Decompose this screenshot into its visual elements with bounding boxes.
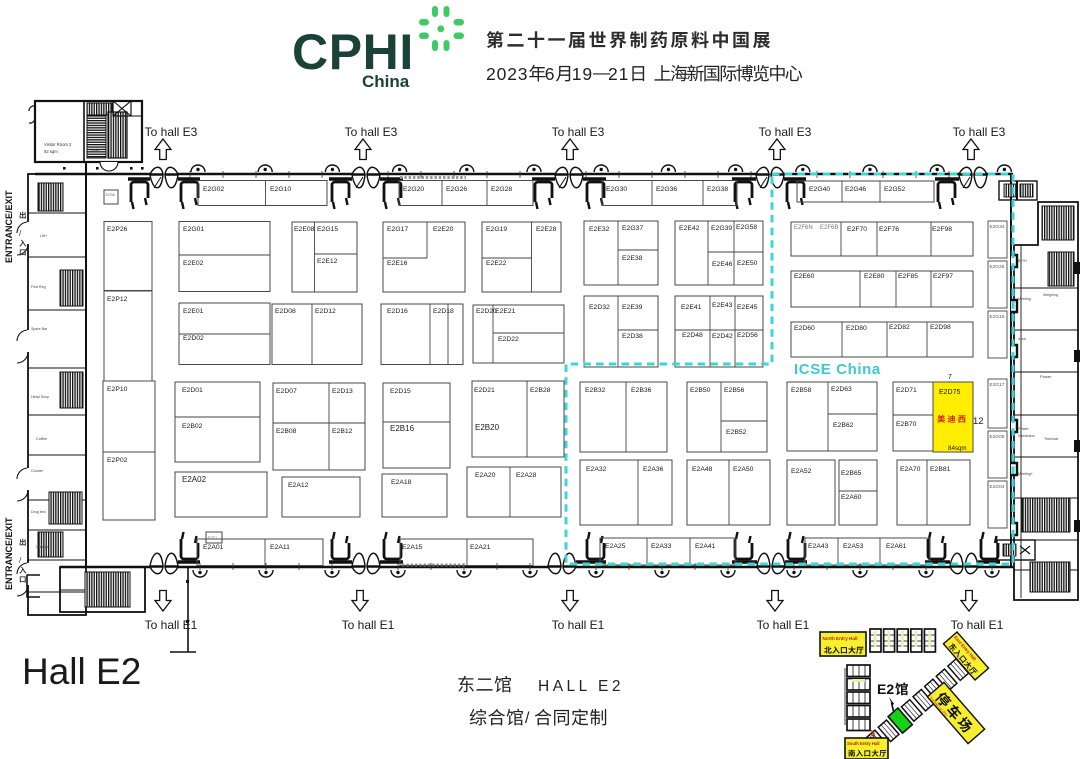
svg-text:E2B70: E2B70 bbox=[896, 421, 917, 428]
svg-text:E2E28: E2E28 bbox=[536, 226, 557, 233]
svg-text:2: 2 bbox=[507, 64, 517, 84]
svg-text:E2A20: E2A20 bbox=[475, 472, 496, 479]
svg-text:E2G10: E2G10 bbox=[270, 186, 291, 193]
svg-text:E2B08: E2B08 bbox=[276, 428, 297, 435]
svg-text:E2A32: E2A32 bbox=[586, 466, 607, 473]
svg-text:E2D02: E2D02 bbox=[183, 335, 204, 342]
svg-text:E2G52: E2G52 bbox=[884, 186, 905, 193]
svg-text:To hall E1: To hall E1 bbox=[145, 618, 198, 632]
svg-text:E2A33: E2A33 bbox=[651, 543, 672, 550]
svg-text:Technical: Technical bbox=[1044, 437, 1058, 441]
svg-text:E2G01: E2G01 bbox=[183, 226, 204, 233]
svg-text:Area: Area bbox=[1018, 337, 1026, 341]
svg-text:E2D13: E2D13 bbox=[332, 388, 353, 395]
svg-text:E2E02: E2E02 bbox=[183, 260, 204, 267]
svg-text:E2G34: E2G34 bbox=[990, 224, 1005, 230]
svg-text:E2B50: E2B50 bbox=[690, 387, 711, 394]
svg-text:E2G30: E2G30 bbox=[606, 186, 627, 193]
svg-text:E2G04: E2G04 bbox=[990, 484, 1005, 490]
svg-text:E2E08: E2E08 bbox=[294, 226, 315, 233]
svg-text:E2F85: E2F85 bbox=[898, 273, 918, 280]
svg-text:E2B81: E2B81 bbox=[930, 466, 951, 473]
svg-text:Weighing: Weighing bbox=[1043, 293, 1058, 297]
svg-text:Toilet: Toilet bbox=[90, 149, 100, 153]
svg-text:To hall E3: To hall E3 bbox=[345, 125, 398, 139]
svg-text:E2G40: E2G40 bbox=[809, 186, 830, 193]
svg-text:E2D75: E2D75 bbox=[939, 389, 961, 396]
svg-text:E2A60: E2A60 bbox=[841, 494, 862, 501]
svg-text:E2F6N: E2F6N bbox=[794, 225, 813, 231]
svg-text:E2D56: E2D56 bbox=[737, 332, 758, 339]
svg-text:Power: Power bbox=[1018, 427, 1029, 431]
svg-text:Head Shop: Head Shop bbox=[31, 395, 49, 399]
svg-text:E2D48: E2D48 bbox=[682, 332, 703, 339]
svg-text:84sqm: 84sqm bbox=[948, 445, 967, 452]
svg-text:E2B36: E2B36 bbox=[631, 387, 652, 394]
svg-text:To hall E3: To hall E3 bbox=[759, 125, 812, 139]
svg-text:North Entry Hall: North Entry Hall bbox=[823, 636, 858, 641]
svg-text:E2A61: E2A61 bbox=[886, 543, 907, 550]
svg-text:E2B65: E2B65 bbox=[841, 470, 862, 477]
svg-text:E2D12: E2D12 bbox=[315, 308, 336, 315]
svg-text:Meeting+: Meeting+ bbox=[1018, 472, 1033, 476]
svg-text:2: 2 bbox=[486, 64, 496, 84]
svg-text:To hall E1: To hall E1 bbox=[552, 618, 605, 632]
svg-text:E2A53: E2A53 bbox=[843, 543, 864, 550]
svg-text:E2F76: E2F76 bbox=[879, 226, 899, 233]
svg-text:E2E41: E2E41 bbox=[681, 304, 702, 311]
svg-text:To hall E1: To hall E1 bbox=[951, 618, 1004, 632]
svg-text:E2B28: E2B28 bbox=[530, 387, 551, 394]
svg-text:Drug test: Drug test bbox=[31, 510, 46, 514]
svg-text:E2G26: E2G26 bbox=[446, 186, 467, 193]
svg-text:E2G46: E2G46 bbox=[845, 186, 866, 193]
svg-text:Power: Power bbox=[1040, 374, 1052, 379]
svg-text:E2B32: E2B32 bbox=[585, 387, 606, 394]
svg-text:E2P02: E2P02 bbox=[107, 457, 128, 464]
svg-text:E2B16: E2B16 bbox=[390, 424, 415, 433]
svg-text:E2A50: E2A50 bbox=[733, 466, 754, 473]
svg-text:E2G28: E2G28 bbox=[491, 186, 512, 193]
svg-text:/: / bbox=[19, 556, 22, 565]
svg-text:ICSE China: ICSE China bbox=[794, 361, 881, 378]
svg-text:E2E20: E2E20 bbox=[433, 226, 454, 233]
svg-text:Courier: Courier bbox=[31, 469, 44, 473]
svg-text:E2A11: E2A11 bbox=[270, 544, 290, 551]
svg-text:ENTRANCE/EXIT: ENTRANCE/EXIT bbox=[4, 517, 14, 590]
svg-text:E2E32: E2E32 bbox=[589, 226, 610, 233]
svg-text:E2D07: E2D07 bbox=[276, 388, 297, 395]
svg-text:E2E50: E2E50 bbox=[737, 260, 758, 267]
svg-text:E2D22: E2D22 bbox=[498, 336, 519, 343]
svg-text:To hall E3: To hall E3 bbox=[953, 125, 1006, 139]
svg-text:E2D18: E2D18 bbox=[433, 308, 454, 315]
svg-text:E2E21: E2E21 bbox=[495, 308, 516, 315]
svg-text:E2E01: E2E01 bbox=[183, 308, 204, 315]
svg-text:Hall E2: Hall E2 bbox=[22, 651, 141, 692]
svg-text:E2D21: E2D21 bbox=[474, 387, 495, 394]
svg-text:E2G39: E2G39 bbox=[711, 225, 732, 232]
svg-text:E2D42: E2D42 bbox=[712, 333, 733, 340]
svg-text:E2E45: E2E45 bbox=[737, 304, 758, 311]
svg-text:E2P26: E2P26 bbox=[107, 226, 128, 233]
svg-text:E2B52: E2B52 bbox=[726, 429, 747, 436]
svg-text:BFS+: BFS+ bbox=[1018, 259, 1028, 263]
svg-text:E2A70: E2A70 bbox=[900, 466, 921, 473]
svg-text:E2A02: E2A02 bbox=[182, 475, 207, 484]
svg-text:E2D15: E2D15 bbox=[390, 388, 411, 395]
svg-text:E2E80: E2E80 bbox=[864, 273, 885, 280]
svg-text:E2G17: E2G17 bbox=[990, 382, 1005, 388]
svg-text:E2G26: E2G26 bbox=[990, 264, 1005, 270]
svg-text:E2P10: E2P10 bbox=[107, 386, 128, 393]
svg-text:To hall E3: To hall E3 bbox=[552, 125, 605, 139]
svg-text:9: 9 bbox=[582, 64, 592, 84]
svg-text:E2D20: E2D20 bbox=[476, 308, 497, 315]
svg-text:E2D32: E2D32 bbox=[589, 304, 610, 311]
svg-text:E2E60: E2E60 bbox=[794, 273, 815, 280]
svg-text:E2G02: E2G02 bbox=[203, 186, 224, 193]
svg-text:E2D16: E2D16 bbox=[387, 308, 408, 315]
svg-text:E2G36: E2G36 bbox=[656, 186, 677, 193]
svg-text:Distribution: Distribution bbox=[1018, 434, 1035, 438]
svg-text:E2D08: E2D08 bbox=[275, 308, 296, 315]
svg-text:E2A28: E2A28 bbox=[516, 472, 537, 479]
svg-text:E2B20: E2B20 bbox=[475, 423, 500, 432]
svg-text:E2S8: E2S8 bbox=[106, 193, 115, 197]
svg-text:Visitor Room 2: Visitor Room 2 bbox=[44, 142, 72, 147]
svg-text:E2B12: E2B12 bbox=[332, 428, 353, 435]
svg-text:E2A36: E2A36 bbox=[643, 466, 664, 473]
svg-text:E2B56: E2B56 bbox=[724, 387, 745, 394]
svg-text:E2B58: E2B58 bbox=[791, 387, 812, 394]
svg-text:E2D71: E2D71 bbox=[896, 387, 917, 394]
svg-text:E2D38: E2D38 bbox=[622, 333, 643, 340]
svg-text:E2A52: E2A52 bbox=[791, 468, 812, 475]
svg-text:1: 1 bbox=[572, 64, 582, 84]
svg-text:E2A01: E2A01 bbox=[203, 544, 224, 551]
svg-text:E2G58: E2G58 bbox=[736, 224, 757, 231]
svg-text:Coffee: Coffee bbox=[36, 437, 47, 441]
svg-text:E2D60: E2D60 bbox=[794, 325, 815, 332]
svg-text:E2A18: E2A18 bbox=[391, 479, 412, 486]
svg-text:/: / bbox=[19, 229, 22, 238]
svg-text:South Entry Hall: South Entry Hall bbox=[847, 741, 880, 746]
svg-text:0: 0 bbox=[497, 64, 507, 84]
svg-text:/: / bbox=[525, 710, 530, 727]
svg-text:E2B62: E2B62 bbox=[833, 422, 854, 429]
svg-text:E2E38: E2E38 bbox=[622, 255, 643, 262]
svg-text:E2G16: E2G16 bbox=[990, 314, 1005, 320]
svg-text:E2E46: E2E46 bbox=[712, 261, 733, 268]
svg-text:E2E43: E2E43 bbox=[712, 302, 733, 309]
svg-text:E2F97: E2F97 bbox=[933, 273, 953, 280]
svg-text:E2E42: E2E42 bbox=[679, 225, 700, 232]
svg-text:Lifestyle: Lifestyle bbox=[36, 545, 49, 549]
svg-text:E2B02: E2B02 bbox=[182, 423, 203, 430]
svg-text:E2A15: E2A15 bbox=[402, 544, 423, 551]
svg-text:E2E22: E2E22 bbox=[486, 260, 507, 267]
svg-text:6: 6 bbox=[545, 64, 555, 84]
svg-text:E2G17: E2G17 bbox=[387, 226, 408, 233]
svg-text:E2G38: E2G38 bbox=[707, 186, 728, 193]
svg-text:To hall E3: To hall E3 bbox=[145, 125, 198, 139]
svg-text:E2F6B: E2F6B bbox=[820, 225, 838, 231]
svg-text:E2P12: E2P12 bbox=[107, 296, 128, 303]
svg-text:HALL E2: HALL E2 bbox=[538, 678, 624, 695]
svg-text:E2A12: E2A12 bbox=[288, 482, 309, 489]
svg-text:E2D80: E2D80 bbox=[846, 325, 867, 332]
svg-text:E2D01: E2D01 bbox=[182, 387, 203, 394]
svg-text:E2G37: E2G37 bbox=[622, 225, 643, 232]
svg-text:E2D63: E2D63 bbox=[831, 386, 852, 393]
svg-text:E2T1: E2T1 bbox=[208, 536, 217, 540]
svg-text:1: 1 bbox=[619, 64, 629, 84]
svg-text:E2E12: E2E12 bbox=[317, 258, 338, 265]
svg-text:To hall E1: To hall E1 bbox=[342, 618, 395, 632]
svg-text:E2G15: E2G15 bbox=[317, 226, 338, 233]
svg-text:E2G20: E2G20 bbox=[403, 186, 424, 193]
svg-text:E2F98: E2F98 bbox=[932, 226, 952, 233]
svg-text:Spare Bar: Spare Bar bbox=[31, 327, 48, 331]
svg-text:E2G19: E2G19 bbox=[486, 226, 507, 233]
svg-text:E2F70: E2F70 bbox=[847, 226, 867, 233]
svg-text:3: 3 bbox=[518, 64, 528, 84]
svg-text:E2A25: E2A25 bbox=[605, 543, 626, 550]
svg-text:E2A21: E2A21 bbox=[470, 544, 491, 551]
svg-text:92 sqm: 92 sqm bbox=[44, 149, 58, 154]
svg-text:E2: E2 bbox=[877, 681, 894, 697]
svg-text:E2D98: E2D98 bbox=[930, 324, 951, 331]
svg-text:E2A48: E2A48 bbox=[692, 466, 713, 473]
svg-text:E2G08: E2G08 bbox=[990, 434, 1005, 440]
svg-text:E2A41: E2A41 bbox=[695, 543, 716, 550]
svg-text:To hall E1: To hall E1 bbox=[757, 618, 810, 632]
svg-text:E2E16: E2E16 bbox=[387, 260, 408, 267]
svg-text:E2D82: E2D82 bbox=[889, 324, 910, 331]
svg-text:First Reg: First Reg bbox=[31, 285, 46, 289]
svg-text:7: 7 bbox=[948, 374, 952, 381]
svg-text:ENTRANCE/EXIT: ENTRANCE/EXIT bbox=[4, 190, 14, 263]
svg-text:2: 2 bbox=[608, 64, 618, 84]
svg-text:Lift+: Lift+ bbox=[40, 234, 48, 238]
svg-text:China: China bbox=[362, 72, 410, 91]
svg-text:12: 12 bbox=[973, 416, 984, 427]
svg-text:E2A43: E2A43 bbox=[808, 543, 829, 550]
svg-text:E2E39: E2E39 bbox=[622, 304, 643, 311]
svg-text:Meeting: Meeting bbox=[1018, 297, 1031, 301]
